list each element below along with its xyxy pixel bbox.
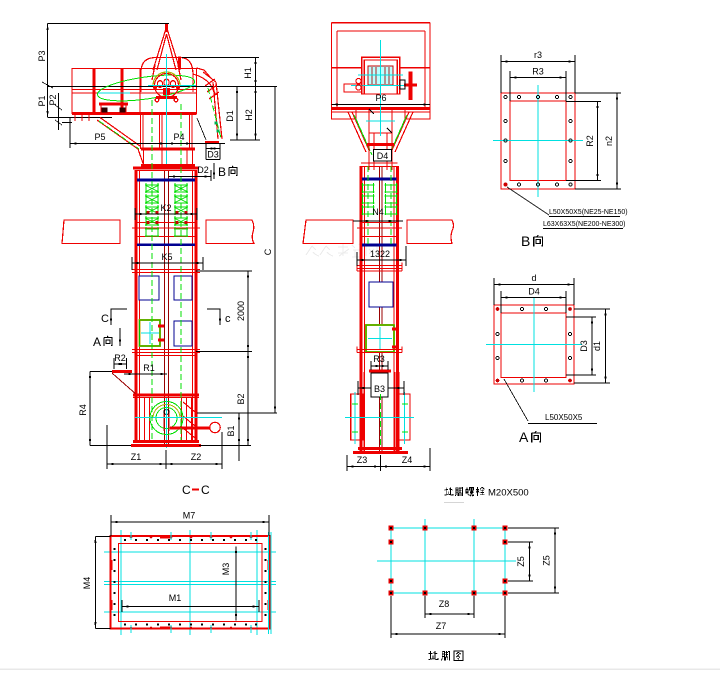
svg-text:n2: n2 xyxy=(604,136,614,146)
svg-text:M7: M7 xyxy=(183,511,196,521)
svg-text:d: d xyxy=(531,273,536,283)
svg-text:P3: P3 xyxy=(37,50,47,61)
svg-text:B2: B2 xyxy=(236,393,246,404)
svg-text:P4: P4 xyxy=(173,132,184,142)
svg-text:B: B xyxy=(218,165,226,179)
svg-text:Z1: Z1 xyxy=(131,452,142,462)
svg-text:d1: d1 xyxy=(592,341,602,351)
svg-text:P6: P6 xyxy=(375,93,386,103)
svg-text:D3: D3 xyxy=(207,150,219,160)
svg-text:Z4: Z4 xyxy=(402,455,413,465)
svg-text:D2: D2 xyxy=(197,165,209,175)
svg-text:R3: R3 xyxy=(532,67,544,77)
svg-text:R3: R3 xyxy=(373,354,385,364)
svg-text:A: A xyxy=(519,429,529,445)
svg-text:P1: P1 xyxy=(37,95,47,106)
svg-text:H1: H1 xyxy=(243,67,253,79)
svg-text:2000: 2000 xyxy=(236,301,246,321)
svg-text:C: C xyxy=(201,483,210,497)
svg-text:C: C xyxy=(263,248,273,255)
svg-text:K2: K2 xyxy=(160,203,171,213)
svg-text:H2: H2 xyxy=(244,109,254,121)
svg-text:r3: r3 xyxy=(534,50,542,60)
svg-text:M3: M3 xyxy=(221,563,231,576)
svg-text:R2: R2 xyxy=(114,353,126,363)
svg-text:L50X50X5(NE25-NE150): L50X50X5(NE25-NE150) xyxy=(549,209,628,216)
svg-text:D3: D3 xyxy=(579,340,589,352)
svg-text:D4: D4 xyxy=(528,287,540,297)
svg-text:B3: B3 xyxy=(374,384,385,394)
svg-text:C: C xyxy=(182,483,191,497)
svg-text:M4: M4 xyxy=(82,577,92,590)
svg-text:Z7: Z7 xyxy=(436,621,447,631)
svg-text:D1: D1 xyxy=(225,110,235,122)
svg-text:L63X63X5(NE200-NE300): L63X63X5(NE200-NE300) xyxy=(543,221,626,228)
svg-text:L50X50X5: L50X50X5 xyxy=(545,413,583,422)
svg-text:Z5: Z5 xyxy=(542,555,552,566)
svg-text:N4: N4 xyxy=(372,207,384,217)
svg-text:M20X500: M20X500 xyxy=(488,488,529,499)
svg-text:A: A xyxy=(93,335,101,349)
svg-text:1322: 1322 xyxy=(370,249,390,259)
svg-text:P5: P5 xyxy=(94,132,105,142)
svg-text:C: C xyxy=(101,313,109,325)
svg-text:D4: D4 xyxy=(377,151,389,161)
svg-text:K5: K5 xyxy=(161,252,172,262)
svg-text:Z2: Z2 xyxy=(191,452,202,462)
svg-text:Z8: Z8 xyxy=(439,599,450,609)
svg-text:P2: P2 xyxy=(48,94,58,105)
svg-text:R2: R2 xyxy=(585,135,595,147)
svg-text:R1: R1 xyxy=(143,363,155,373)
svg-text:Z5: Z5 xyxy=(516,556,526,567)
svg-text:R4: R4 xyxy=(78,404,88,416)
svg-text:M1: M1 xyxy=(169,593,182,603)
svg-text:c: c xyxy=(225,313,231,325)
svg-text:Z3: Z3 xyxy=(357,455,368,465)
svg-text:B: B xyxy=(521,233,530,249)
svg-text:B1: B1 xyxy=(226,425,236,436)
